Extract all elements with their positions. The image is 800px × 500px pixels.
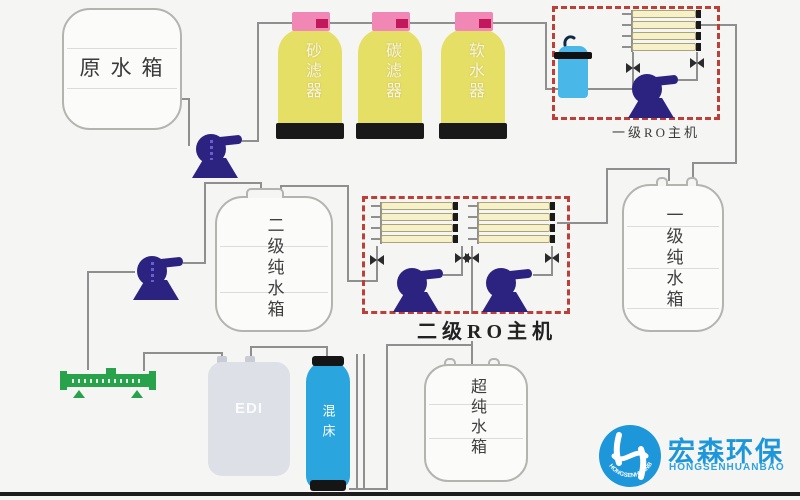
filter-base (356, 123, 424, 139)
carbon-filter: 碳滤器 (358, 12, 424, 142)
manifold-foot (73, 390, 85, 398)
mixed-bed-bottom-cap (310, 480, 346, 491)
manifold-foot (131, 390, 143, 398)
raw-water-tank: 原水箱 (62, 8, 182, 130)
bottom-edge-line (0, 492, 800, 496)
valve-icon (626, 62, 640, 74)
mixed-bed-column: 混床 (306, 360, 350, 490)
filter-top-valve (455, 12, 493, 31)
tank-level-line (67, 88, 177, 89)
security-filter-vent-icon (562, 33, 578, 47)
filter-base (439, 123, 507, 139)
ro2-pump-left-icon (393, 266, 443, 312)
carbon-filter-label: 碳滤器 (379, 42, 403, 102)
membrane-tube (632, 10, 696, 18)
filter-top-valve (372, 12, 410, 31)
edi-label: EDI (208, 400, 290, 417)
filter-valve-knob (396, 19, 408, 28)
pump-text-marks (151, 262, 154, 282)
valve-icon (690, 57, 704, 69)
stage1-pure-water-tank: 一级纯水箱 (622, 184, 724, 332)
tank-port (656, 177, 668, 186)
tank-port (686, 177, 698, 186)
stage2-transfer-pump-icon (133, 254, 183, 300)
softener-filter-label: 软水器 (462, 42, 486, 102)
ro-stage2-label: 二级RO主机 (412, 315, 562, 344)
ultra-pure-water-tank-label: 超纯水箱 (464, 378, 488, 458)
company-name-en: HONGSENHUANBAO (669, 462, 785, 473)
membrane-tube (632, 32, 696, 40)
ro2-pump-right-icon (482, 266, 532, 312)
water-use-point-manifold (60, 366, 156, 398)
security-filter-band (554, 52, 592, 59)
stage2-pure-water-tank: 二级纯水箱 (215, 196, 333, 332)
mixed-bed-label: 混床 (319, 404, 338, 444)
sand-filter-label: 砂滤器 (299, 42, 323, 102)
tank-cap (246, 188, 284, 198)
ultra-pure-water-tank: 超纯水箱 (424, 364, 528, 482)
manifold-tee (106, 368, 116, 376)
raw-water-pump-icon (192, 132, 242, 178)
softener-filter: 软水器 (441, 12, 507, 142)
ro1-high-pressure-pump-icon (628, 72, 678, 118)
ro2-membrane-stack-left (371, 202, 463, 244)
filter-valve-knob (316, 19, 328, 28)
ro2-membrane-stack-right (468, 202, 560, 244)
edi-module: EDI (208, 362, 290, 476)
stage2-pure-water-tank-label: 二级纯水箱 (262, 216, 287, 321)
raw-water-tank-label: 原水箱 (64, 52, 180, 82)
mixed-bed-top-cap (312, 356, 344, 366)
membrane-tube (632, 43, 696, 51)
pump-text-marks (210, 140, 213, 160)
filter-base (276, 123, 344, 139)
filter-top-valve (292, 12, 330, 31)
stage1-pure-water-tank-label: 一级纯水箱 (661, 206, 686, 311)
water-treatment-flow-diagram: 原水箱 砂滤器 碳滤器 软水器 (0, 0, 800, 500)
pump-base (192, 158, 238, 178)
manifold-flange (60, 371, 67, 390)
valve-icon (545, 252, 559, 264)
valve-icon (465, 252, 479, 264)
filter-valve-knob (479, 19, 491, 28)
ro1-membrane-stack (622, 10, 704, 52)
ro-stage1-label: 一级RO主机 (596, 122, 716, 141)
valve-icon (370, 254, 384, 266)
manifold-flange (149, 371, 156, 390)
company-logo-mark-icon: HONGSENHUANBAO (596, 422, 664, 490)
manifold-text-marks (72, 379, 144, 383)
sand-filter: 砂滤器 (278, 12, 344, 142)
tank-level-line (67, 48, 177, 49)
membrane-tube (632, 21, 696, 29)
